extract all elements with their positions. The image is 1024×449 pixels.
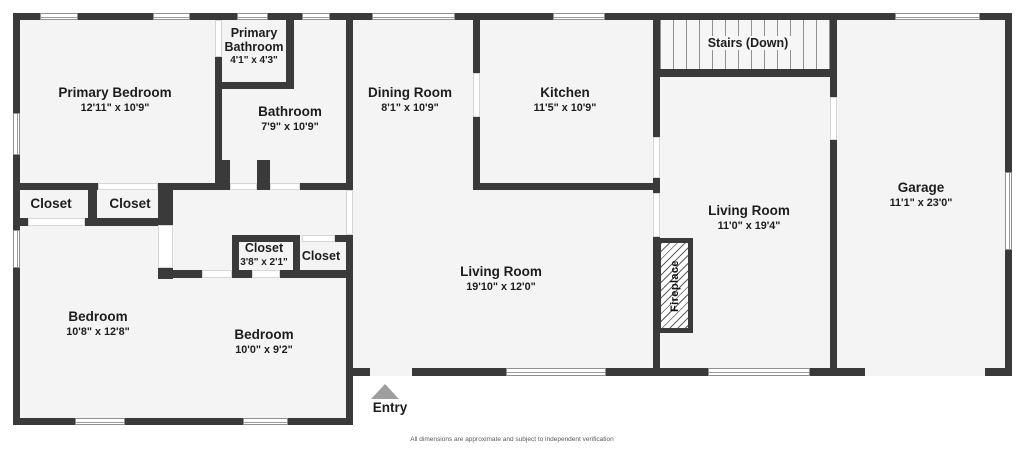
- wall: [232, 235, 239, 278]
- window: [553, 13, 605, 20]
- fireplace-label: Fireplace: [669, 260, 681, 312]
- window: [372, 13, 455, 20]
- wall: [300, 183, 346, 190]
- window: [13, 113, 20, 155]
- wall: [810, 368, 865, 376]
- room-label-primary-bedroom: Primary Bedroom 12'11" x 10'9": [58, 85, 171, 115]
- wall: [158, 183, 173, 225]
- door-opening: [270, 183, 300, 190]
- door-opening: [230, 183, 257, 190]
- room-label-closet-4: Closet: [302, 249, 340, 264]
- room-label-living-room-right: Living Room 11'0" x 19'4": [708, 203, 790, 233]
- door-opening: [302, 235, 335, 242]
- window: [243, 418, 288, 425]
- door-opening: [202, 270, 232, 278]
- wall: [830, 13, 837, 97]
- window: [153, 13, 190, 20]
- disclaimer-text: All dimensions are approximate and subje…: [410, 436, 613, 443]
- wall: [653, 178, 660, 193]
- wall: [473, 117, 480, 190]
- door-opening: [28, 218, 85, 226]
- wall: [335, 235, 346, 242]
- room-label-garage: Garage 11'1" x 23'0": [890, 180, 953, 210]
- wall: [653, 20, 660, 137]
- wall: [293, 235, 300, 278]
- room-label-stairs: Stairs (Down): [703, 36, 794, 50]
- entry-label: Entry: [373, 400, 408, 415]
- door-opening: [346, 190, 353, 235]
- wall: [158, 270, 202, 278]
- window: [506, 368, 606, 376]
- door-opening: [98, 183, 158, 190]
- window: [302, 13, 330, 20]
- window: [708, 368, 810, 376]
- wall: [13, 183, 98, 190]
- window: [75, 418, 125, 425]
- window: [40, 13, 78, 20]
- window: [1005, 172, 1012, 250]
- room-label-bedroom-right: Bedroom 10'0" x 9'2": [234, 327, 293, 357]
- wall: [473, 20, 480, 73]
- wall: [653, 69, 837, 77]
- room-label-closet-3: Closet 3'8" x 2'1": [240, 241, 288, 269]
- wall: [473, 183, 658, 190]
- wall: [257, 160, 270, 190]
- wall: [13, 418, 353, 425]
- room-label-closet-2: Closet: [109, 196, 150, 212]
- door-opening: [252, 270, 280, 278]
- room-label-closet-1: Closet: [30, 196, 71, 212]
- wall: [985, 368, 1012, 376]
- room-label-bathroom: Bathroom 7'9" x 10'9": [258, 104, 322, 134]
- window: [895, 13, 980, 20]
- window: [237, 13, 268, 20]
- room-label-living-room-center: Living Room 19'10" x 12'0": [460, 264, 542, 294]
- door-opening: [158, 225, 173, 268]
- door-opening: [830, 97, 837, 140]
- wall: [346, 20, 353, 190]
- wall: [222, 82, 293, 89]
- wall: [13, 218, 28, 226]
- wall: [412, 368, 506, 376]
- room-label-primary-bathroom: Primary Bathroom 4'1" x 4'3": [218, 26, 290, 67]
- wall: [346, 235, 353, 425]
- room-label-kitchen: Kitchen 11'5" x 10'9": [534, 85, 597, 115]
- room-label-dining-room: Dining Room 8'1" x 10'9": [368, 85, 452, 115]
- floor-plan: Fireplace Stairs (Down) Primary Bedroom …: [0, 0, 1024, 449]
- door-opening: [473, 73, 480, 117]
- door-opening: [653, 137, 660, 178]
- wall: [280, 270, 346, 278]
- fireplace: Fireplace: [656, 238, 693, 333]
- wall: [830, 140, 837, 376]
- window: [13, 230, 20, 268]
- wall: [215, 57, 222, 183]
- entry-arrow-icon: [371, 384, 399, 399]
- door-opening: [653, 193, 660, 237]
- room-label-bedroom-left: Bedroom 10'8" x 12'8": [66, 309, 129, 339]
